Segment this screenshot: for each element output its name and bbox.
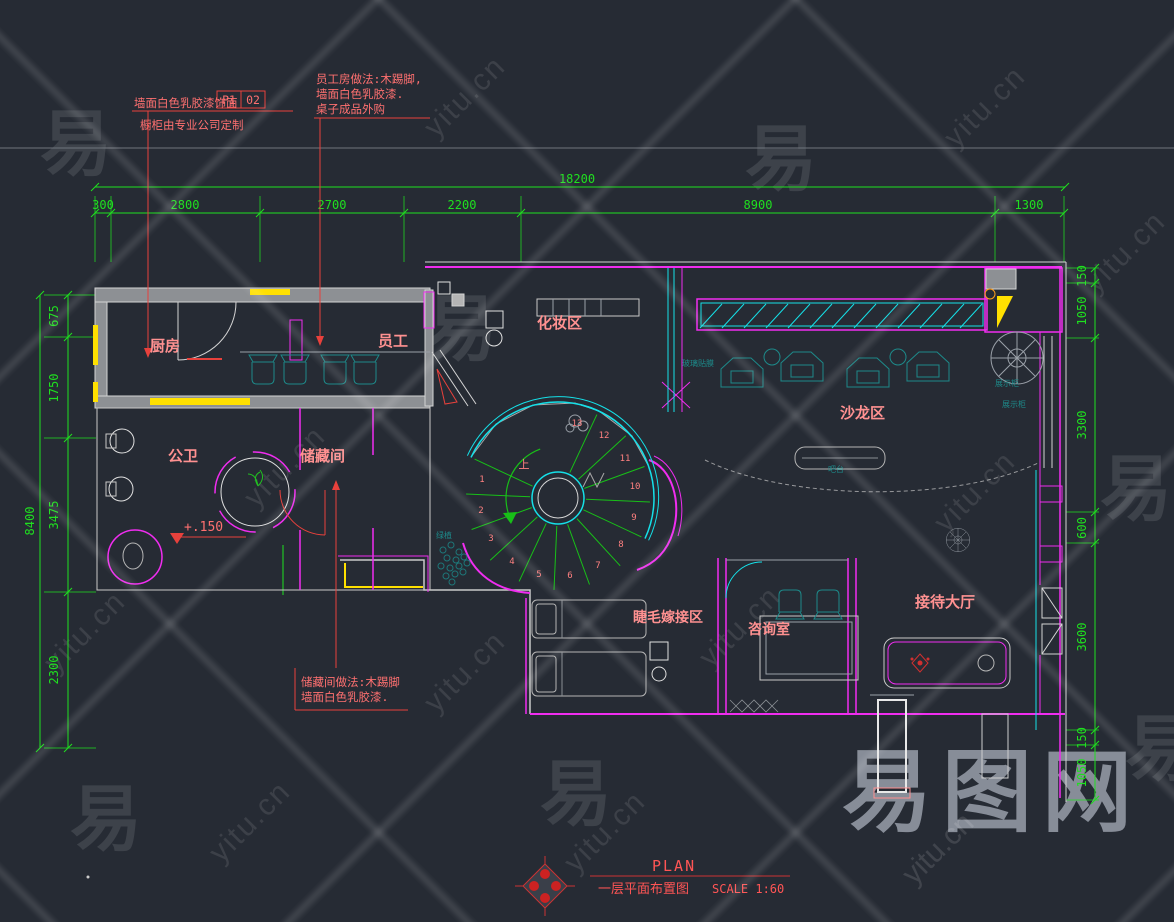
svg-text:10: 10 bbox=[630, 482, 641, 492]
room-staff: 员工 bbox=[378, 332, 408, 350]
svg-text:2200: 2200 bbox=[448, 198, 477, 212]
cad-canvas: 易 易 易 易 易 易 易 yitu.cn yitu.cn yitu.cn yi… bbox=[0, 0, 1174, 922]
svg-text:8900: 8900 bbox=[744, 198, 773, 212]
svg-text:2800: 2800 bbox=[171, 198, 200, 212]
dim-total-left: 8400 bbox=[23, 507, 37, 536]
room-toilet: 公卫 bbox=[168, 447, 198, 465]
elevation-label: +.150 bbox=[184, 520, 223, 535]
svg-text:3300: 3300 bbox=[1075, 411, 1089, 440]
dim-total-top: 18200 bbox=[559, 172, 595, 186]
svg-text:600: 600 bbox=[1075, 517, 1089, 539]
stair-treads bbox=[466, 415, 650, 590]
dimension-labels: 18200 300 2800 2700 2200 8900 1300 8400 … bbox=[23, 172, 1089, 787]
staff-note-line1: 员工房做法:木踢脚, bbox=[316, 72, 422, 86]
svg-text:2300: 2300 bbox=[47, 656, 61, 685]
display-cabinet-label: 展示柜 bbox=[1002, 399, 1026, 409]
svg-text:1050: 1050 bbox=[1075, 759, 1089, 788]
wall-note-tag-num: 02 bbox=[246, 93, 260, 107]
room-consult: 咨询室 bbox=[748, 621, 790, 638]
staff-note-line3: 桌子成品外购 bbox=[316, 102, 385, 116]
glass-film-label: 玻璃贴膜 bbox=[682, 358, 714, 368]
svg-text:3: 3 bbox=[488, 534, 493, 544]
storage-note-line2: 墙面白色乳胶漆. bbox=[301, 690, 388, 704]
staff-note-line2: 墙面白色乳胶漆. bbox=[316, 87, 403, 101]
room-eyelash: 睫毛嫁接区 bbox=[633, 609, 703, 626]
svg-text:1300: 1300 bbox=[1015, 198, 1044, 212]
svg-text:1050: 1050 bbox=[1075, 297, 1089, 326]
svg-text:7: 7 bbox=[595, 561, 600, 571]
dimension-lines bbox=[36, 183, 1099, 804]
svg-text:3600: 3600 bbox=[1075, 623, 1089, 652]
shower-plant bbox=[248, 470, 263, 486]
title-name: 一层平面布置图 bbox=[598, 882, 689, 897]
title-plan: PLAN bbox=[652, 857, 696, 875]
stray-dot bbox=[87, 876, 90, 879]
room-reception: 接待大厅 bbox=[915, 593, 975, 611]
svg-text:675: 675 bbox=[47, 305, 61, 327]
svg-text:2: 2 bbox=[478, 506, 483, 516]
svg-text:4: 4 bbox=[509, 557, 514, 567]
svg-text:9: 9 bbox=[631, 513, 636, 523]
stair-up-label: 上 bbox=[519, 458, 530, 471]
furniture bbox=[106, 299, 1043, 712]
title-scale: SCALE 1:60 bbox=[712, 882, 784, 896]
title-block: PLAN 一层平面布置图 SCALE 1:60 bbox=[515, 856, 790, 916]
floorplan-drawing: 18200 300 2800 2700 2200 8900 1300 8400 … bbox=[0, 0, 1174, 922]
storage-note-line1: 储藏间做法:木踢脚 bbox=[301, 675, 400, 689]
tiny-teal-labels: 展示柜 展示柜 吧台 绿植 玻璃贴膜 bbox=[436, 358, 1026, 540]
room-makeup: 化妆区 bbox=[537, 314, 582, 332]
spiral-stair bbox=[466, 397, 659, 590]
stair-step-numbers: 1 2 3 4 5 6 7 8 9 10 11 12 13 上 bbox=[478, 419, 640, 581]
svg-text:1: 1 bbox=[479, 475, 484, 485]
wall-note-tag-code: P1 bbox=[222, 93, 236, 107]
display-cabinet-label: 展示柜 bbox=[995, 378, 1019, 388]
svg-text:150: 150 bbox=[1075, 727, 1089, 749]
bar-label: 吧台 bbox=[828, 464, 844, 474]
svg-text:5: 5 bbox=[536, 570, 541, 580]
svg-text:11: 11 bbox=[620, 454, 631, 464]
svg-text:1750: 1750 bbox=[47, 374, 61, 403]
wall-note-line2: 橱柜由专业公司定制 bbox=[140, 118, 244, 132]
svg-text:8: 8 bbox=[618, 540, 623, 550]
red-annotation-text: 墙面白色乳胶漆饰面 橱柜由专业公司定制 P1 02 员工房做法:木踢脚, 墙面白… bbox=[134, 72, 422, 704]
plant-label: 绿植 bbox=[436, 530, 452, 540]
svg-text:2700: 2700 bbox=[318, 198, 347, 212]
svg-text:150: 150 bbox=[1075, 265, 1089, 287]
room-kitchen: 厨房 bbox=[150, 337, 180, 355]
reception-logo bbox=[911, 654, 930, 672]
svg-text:12: 12 bbox=[599, 431, 610, 441]
svg-text:3475: 3475 bbox=[47, 501, 61, 530]
room-storage: 储藏间 bbox=[300, 447, 345, 465]
svg-text:300: 300 bbox=[92, 198, 114, 212]
svg-text:6: 6 bbox=[567, 571, 572, 581]
room-salon: 沙龙区 bbox=[840, 404, 885, 422]
walls-magenta bbox=[108, 267, 1065, 798]
svg-text:13: 13 bbox=[572, 419, 583, 429]
